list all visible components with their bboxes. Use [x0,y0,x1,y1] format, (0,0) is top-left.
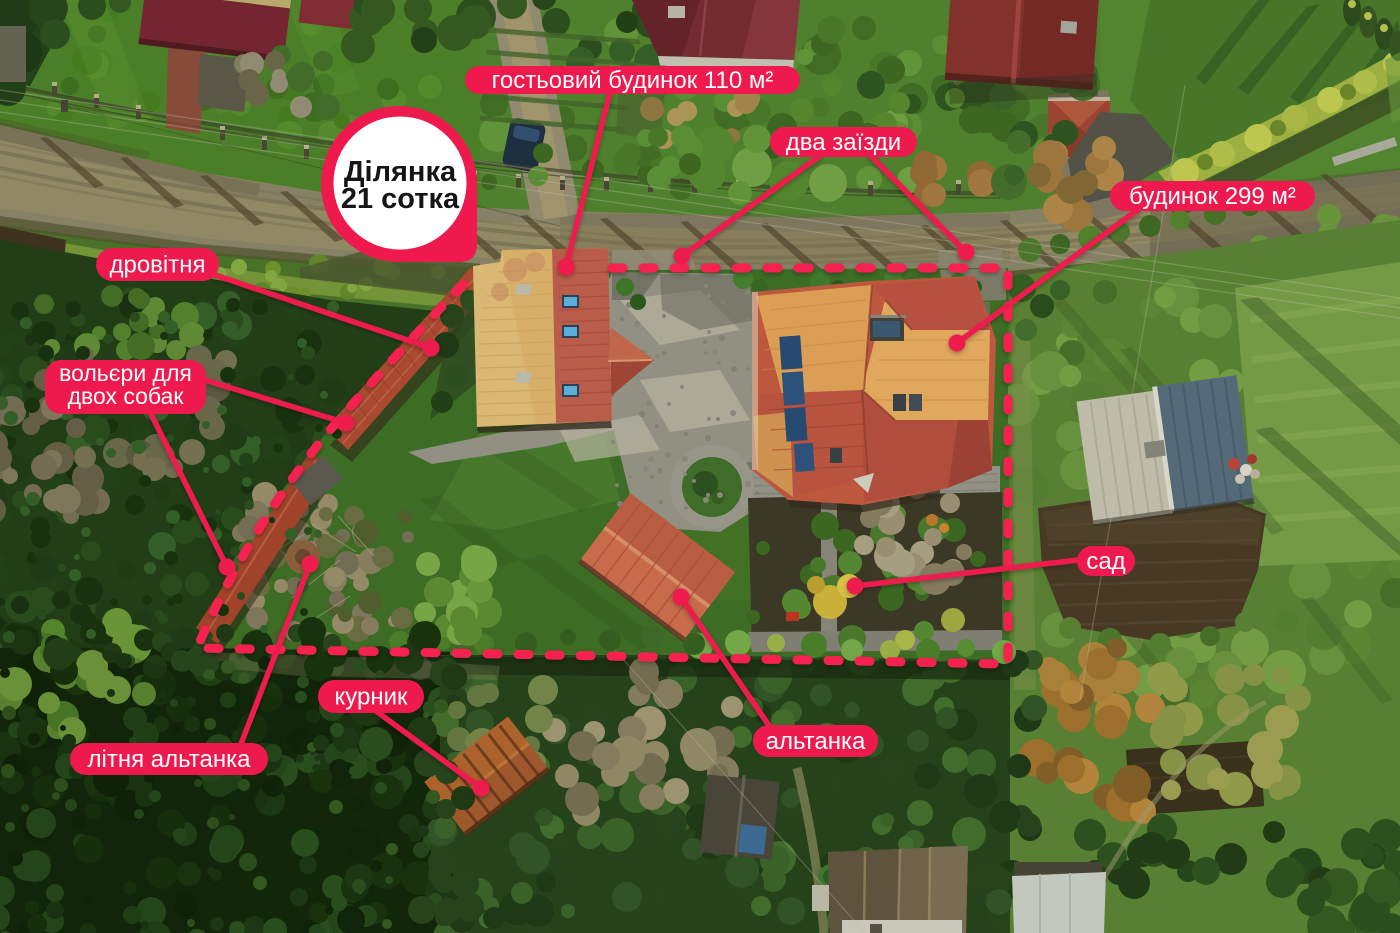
svg-text:сад: сад [1086,548,1125,575]
svg-text:21 сотка: 21 сотка [341,183,460,215]
svg-text:будинок 299 м²: будинок 299 м² [1129,183,1296,210]
svg-text:курник: курник [334,684,408,711]
svg-text:гостьовий будинок 110 м²: гостьовий будинок 110 м² [492,67,774,94]
svg-text:літня альтанка: літня альтанка [88,746,252,773]
svg-text:два заїзди: два заїзди [786,129,901,156]
svg-text:альтанка: альтанка [766,728,866,755]
svg-text:двох собак: двох собак [68,383,185,409]
svg-text:дровітня: дровітня [109,252,205,279]
